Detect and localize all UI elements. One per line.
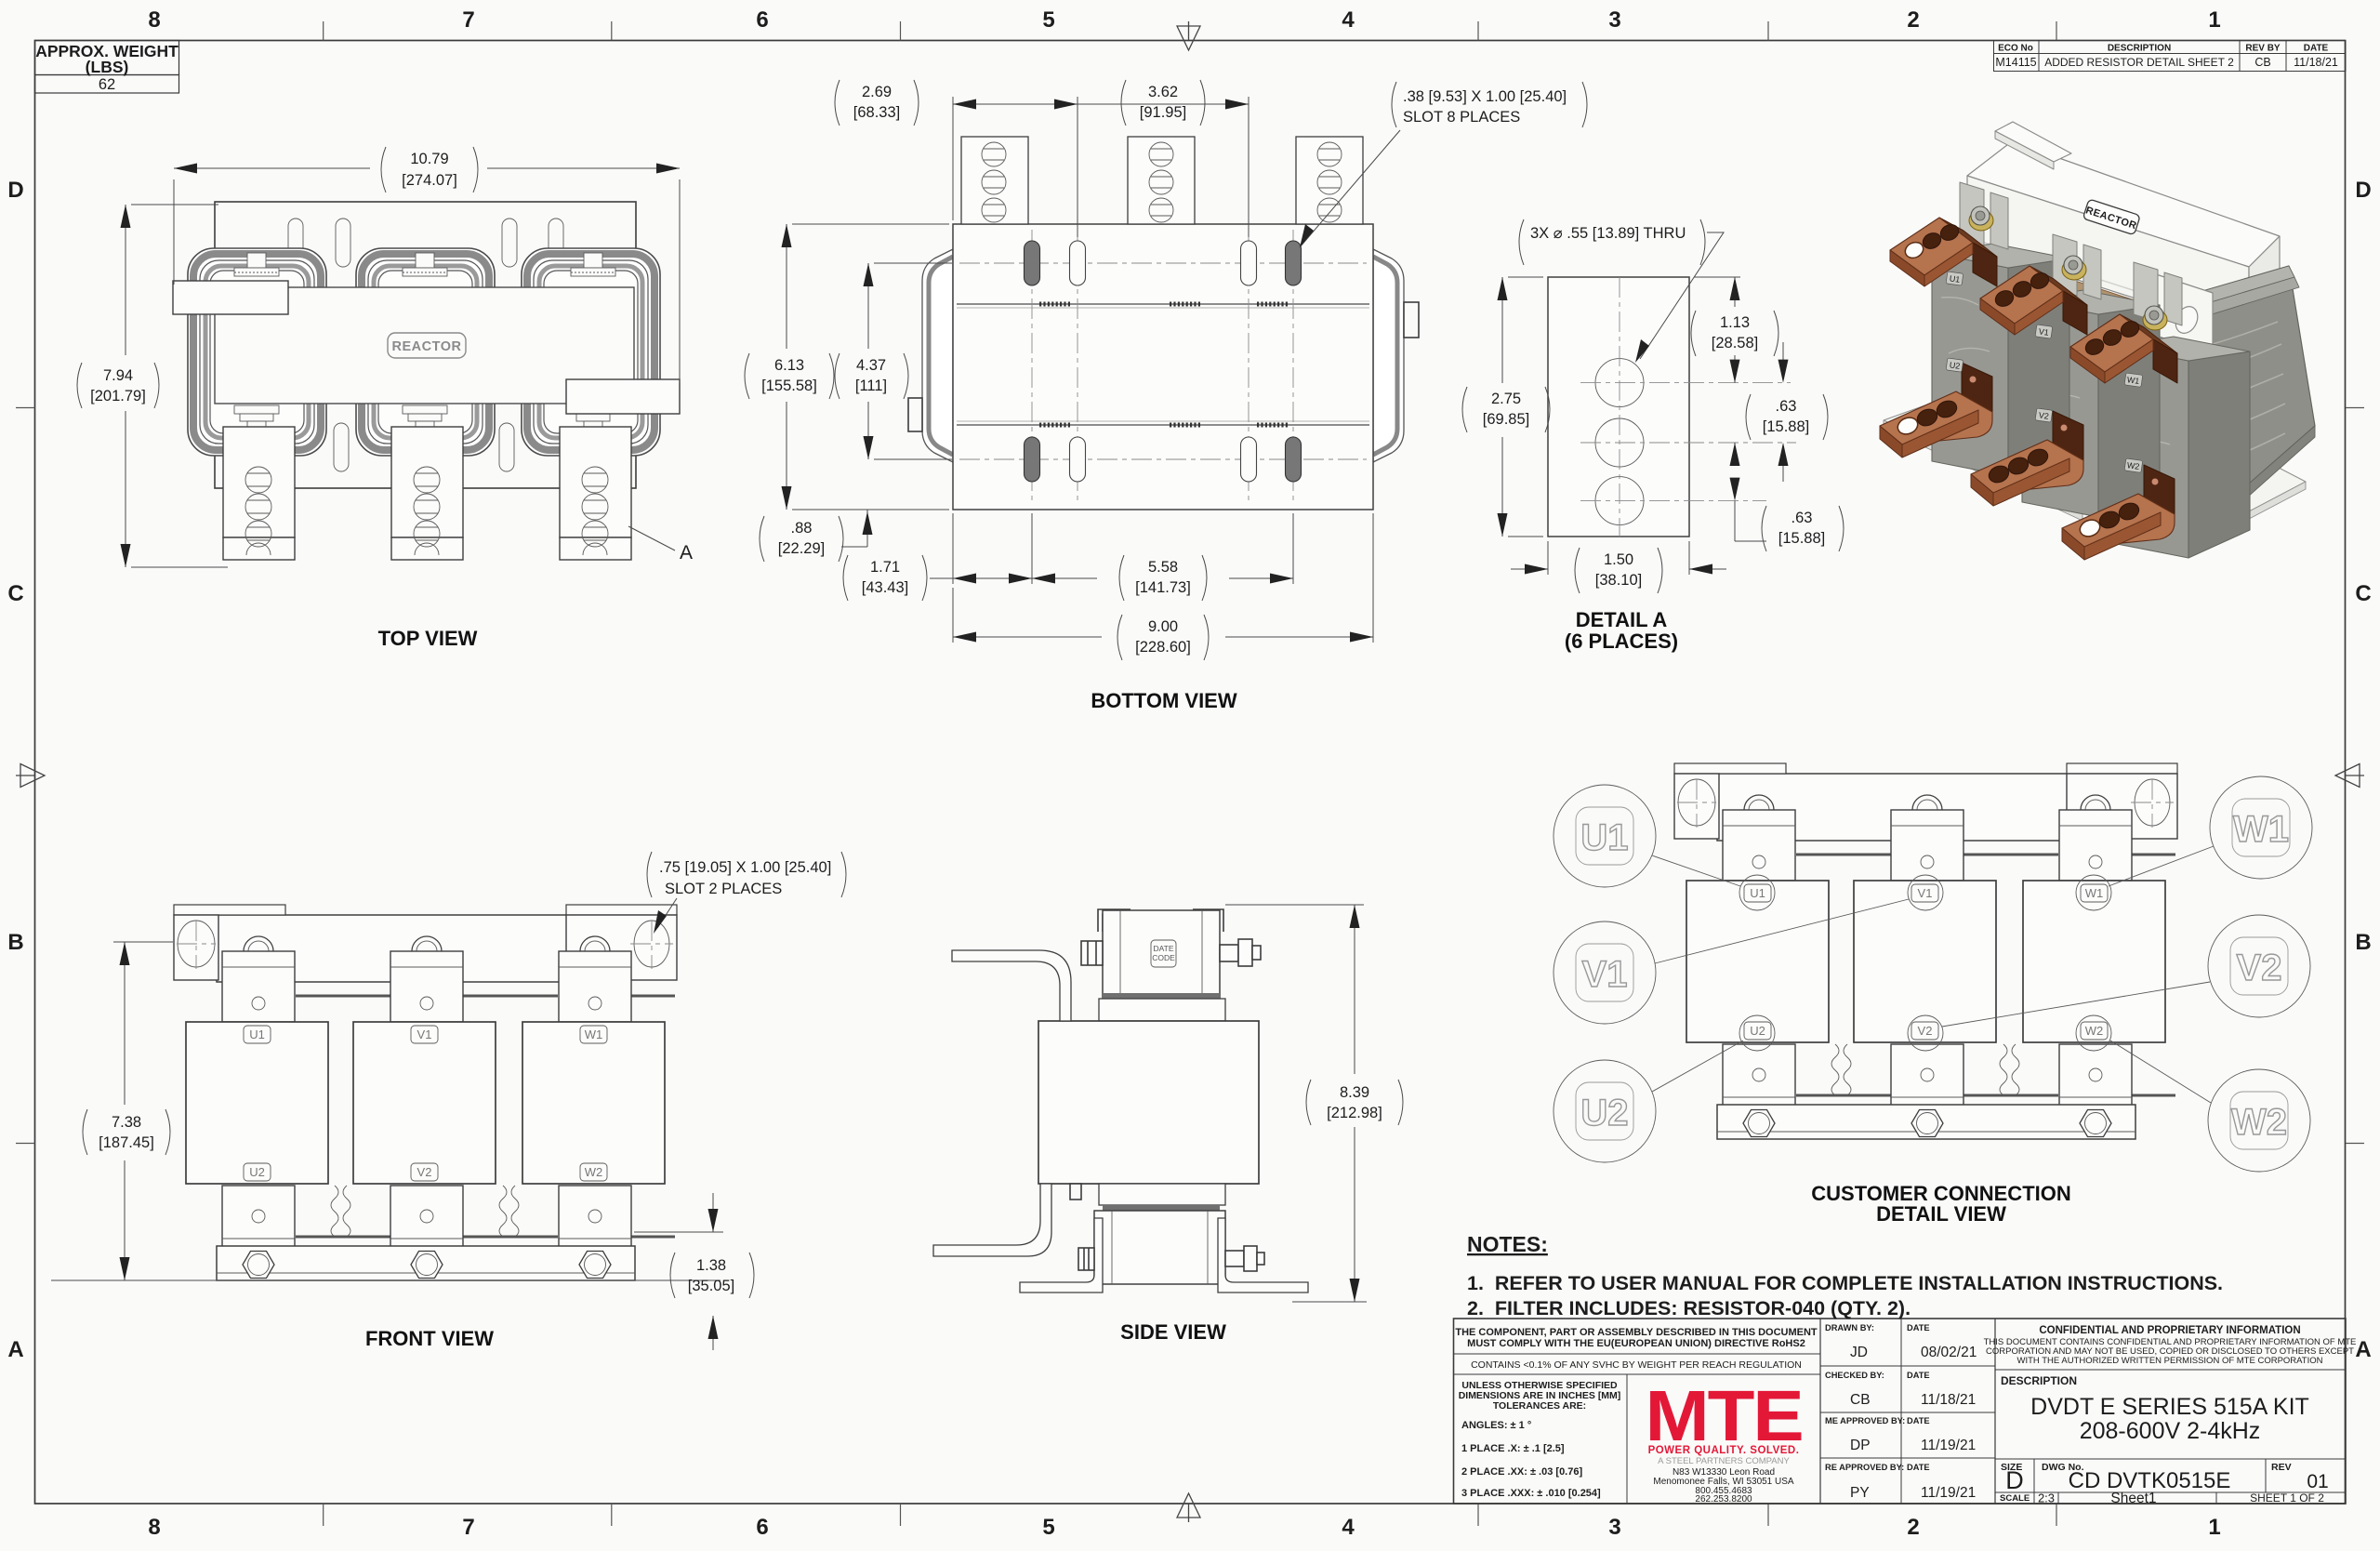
svg-text:11/18/21: 11/18/21 bbox=[1921, 1392, 1976, 1408]
svg-text:[274.07]: [274.07] bbox=[402, 172, 457, 189]
svg-text:BOTTOM VIEW: BOTTOM VIEW bbox=[1091, 689, 1236, 712]
svg-text:[22.29]: [22.29] bbox=[778, 540, 825, 557]
svg-text:7.94: 7.94 bbox=[103, 367, 133, 384]
svg-text:MTE: MTE bbox=[1645, 1375, 1802, 1455]
svg-text:REV: REV bbox=[2271, 1462, 2292, 1473]
svg-text:1: 1 bbox=[2208, 1515, 2220, 1540]
svg-text:DATE: DATE bbox=[2304, 44, 2329, 54]
svg-text:08/02/21: 08/02/21 bbox=[1921, 1345, 1977, 1360]
svg-text:M14115: M14115 bbox=[1995, 56, 2036, 69]
svg-text:W2: W2 bbox=[2231, 1102, 2287, 1143]
svg-text:2 PLACE .XX: ± .03 [0.76]: 2 PLACE .XX: ± .03 [0.76] bbox=[1461, 1466, 1582, 1478]
svg-text:[15.88]: [15.88] bbox=[1763, 418, 1809, 435]
svg-text:DESCRIPTION: DESCRIPTION bbox=[2108, 44, 2171, 54]
svg-text:5: 5 bbox=[1042, 1515, 1054, 1540]
svg-text:.75 [19.05] X 1.00 [25.40]: .75 [19.05] X 1.00 [25.40] bbox=[659, 859, 831, 876]
svg-text:11/19/21: 11/19/21 bbox=[1921, 1438, 1976, 1453]
svg-text:2.75: 2.75 bbox=[1491, 391, 1521, 407]
svg-text:U1: U1 bbox=[249, 1027, 265, 1041]
svg-text:CONFIDENTIAL AND PROPRIETARY I: CONFIDENTIAL AND PROPRIETARY INFORMATION bbox=[2039, 1325, 2300, 1336]
svg-text:4: 4 bbox=[1342, 1515, 1355, 1540]
svg-text:DRAWN BY:: DRAWN BY: bbox=[1825, 1323, 1874, 1332]
svg-text:8: 8 bbox=[148, 1515, 160, 1540]
svg-text:9.00: 9.00 bbox=[1148, 618, 1178, 635]
svg-text:U1: U1 bbox=[1949, 273, 1961, 285]
svg-text:[111]: [111] bbox=[855, 378, 887, 394]
svg-text:A: A bbox=[2355, 1337, 2371, 1362]
svg-text:(6 PLACES): (6 PLACES) bbox=[1565, 630, 1678, 653]
svg-text:DATE: DATE bbox=[1907, 1463, 1930, 1472]
svg-text:1.50: 1.50 bbox=[1604, 551, 1633, 568]
svg-text:A: A bbox=[680, 542, 693, 563]
svg-text:[28.58]: [28.58] bbox=[1712, 335, 1758, 351]
svg-text:W2: W2 bbox=[2126, 460, 2140, 471]
svg-text:POWER QUALITY. SOLVED.: POWER QUALITY. SOLVED. bbox=[1648, 1445, 1800, 1456]
svg-text:262.253.8200: 262.253.8200 bbox=[1695, 1494, 1752, 1505]
svg-text:C: C bbox=[7, 581, 23, 606]
svg-text:ME APPROVED BY:: ME APPROVED BY: bbox=[1825, 1416, 1905, 1425]
svg-text:A STEEL PARTNERS COMPANY: A STEEL PARTNERS COMPANY bbox=[1658, 1456, 1790, 1466]
svg-text:[228.60]: [228.60] bbox=[1135, 639, 1191, 656]
svg-text:1 PLACE .X: ± .1 [2.5]: 1 PLACE .X: ± .1 [2.5] bbox=[1461, 1443, 1565, 1454]
svg-text:ADDED RESISTOR DETAIL SHEET 2: ADDED RESISTOR DETAIL SHEET 2 bbox=[2044, 56, 2234, 69]
svg-text:[15.88]: [15.88] bbox=[1778, 530, 1825, 547]
svg-text:DETAIL VIEW: DETAIL VIEW bbox=[1876, 1202, 2006, 1226]
svg-text:Sheet1: Sheet1 bbox=[2110, 1491, 2156, 1506]
svg-text:8: 8 bbox=[148, 7, 160, 33]
svg-text:5: 5 bbox=[1042, 7, 1054, 33]
svg-text:TOLERANCES ARE:: TOLERANCES ARE: bbox=[1493, 1400, 1586, 1412]
svg-text:RE APPROVED BY:: RE APPROVED BY: bbox=[1825, 1463, 1904, 1472]
svg-text:U1: U1 bbox=[1580, 817, 1628, 858]
svg-text:2: 2 bbox=[1907, 7, 1919, 33]
svg-text:W1: W1 bbox=[2233, 809, 2289, 850]
svg-text:SIDE VIEW: SIDE VIEW bbox=[1120, 1320, 1226, 1344]
svg-text:C: C bbox=[2355, 581, 2371, 606]
svg-text:SLOT 2 PLACES: SLOT 2 PLACES bbox=[665, 881, 782, 897]
svg-text:3.62: 3.62 bbox=[1148, 84, 1178, 100]
svg-text:V2: V2 bbox=[2237, 948, 2282, 988]
svg-text:6: 6 bbox=[756, 7, 768, 33]
svg-text:.88: .88 bbox=[791, 520, 813, 537]
svg-text:ANGLES: ± 1 °: ANGLES: ± 1 ° bbox=[1461, 1420, 1531, 1431]
svg-text:TOP VIEW: TOP VIEW bbox=[378, 627, 478, 650]
svg-text:WITH THE AUTHORIZED WRITTEN PE: WITH THE AUTHORIZED WRITTEN PERMISSION O… bbox=[2017, 1356, 2323, 1366]
svg-text:.63: .63 bbox=[1792, 510, 1813, 526]
svg-text:[35.05]: [35.05] bbox=[688, 1278, 734, 1294]
svg-text:ECO No: ECO No bbox=[1998, 44, 2033, 54]
svg-text:3: 3 bbox=[1608, 1515, 1620, 1540]
svg-text:W1: W1 bbox=[585, 1027, 603, 1041]
svg-text:DP: DP bbox=[1850, 1438, 1871, 1453]
svg-text:D: D bbox=[2355, 178, 2371, 203]
svg-text:2. FILTER INCLUDES: RESISTOR-: 2. FILTER INCLUDES: RESISTOR-040 (QTY. 2… bbox=[1467, 1297, 1911, 1319]
svg-text:V1: V1 bbox=[417, 1027, 432, 1041]
svg-text:DETAIL A: DETAIL A bbox=[1576, 608, 1668, 631]
svg-text:JD: JD bbox=[1850, 1345, 1868, 1360]
svg-text:01: 01 bbox=[2307, 1471, 2328, 1492]
svg-text:1. REFER TO USER MANUAL FOR C: 1. REFER TO USER MANUAL FOR COMPLETE INS… bbox=[1467, 1272, 2223, 1294]
svg-text:5.58: 5.58 bbox=[1148, 559, 1178, 576]
svg-text:10.79: 10.79 bbox=[410, 151, 448, 167]
svg-text:6.13: 6.13 bbox=[774, 357, 804, 374]
svg-text:V1: V1 bbox=[1582, 954, 1628, 995]
svg-text:CHECKED BY:: CHECKED BY: bbox=[1825, 1371, 1884, 1380]
svg-text:DVDT E SERIES 515A KIT: DVDT E SERIES 515A KIT bbox=[2030, 1394, 2309, 1420]
svg-text:[43.43]: [43.43] bbox=[862, 579, 908, 596]
svg-text:2:3: 2:3 bbox=[2038, 1491, 2055, 1505]
svg-text:U2: U2 bbox=[1580, 1093, 1628, 1133]
svg-text:SHEET 1 OF 2: SHEET 1 OF 2 bbox=[2250, 1491, 2324, 1505]
svg-text:[68.33]: [68.33] bbox=[853, 104, 900, 121]
svg-text:[91.95]: [91.95] bbox=[1140, 104, 1186, 121]
svg-text:8.39: 8.39 bbox=[1340, 1084, 1369, 1101]
svg-text:DESCRIPTION: DESCRIPTION bbox=[2001, 1374, 2077, 1387]
svg-text:V2: V2 bbox=[2038, 410, 2049, 420]
svg-text:.38 [9.53] X 1.00 [25.40]: .38 [9.53] X 1.00 [25.40] bbox=[1403, 88, 1567, 105]
svg-text:7: 7 bbox=[462, 1515, 474, 1540]
svg-text:THE COMPONENT, PART OR ASSEMBL: THE COMPONENT, PART OR ASSEMBLY DESCRIBE… bbox=[1455, 1327, 1818, 1338]
svg-text:7.38: 7.38 bbox=[112, 1114, 141, 1131]
svg-text:W2: W2 bbox=[585, 1165, 603, 1179]
svg-text:3X ⌀ .55 [13.89] THRU: 3X ⌀ .55 [13.89] THRU bbox=[1530, 225, 1686, 242]
svg-text:CD DVTK0515E: CD DVTK0515E bbox=[2069, 1468, 2231, 1493]
svg-text:11/19/21: 11/19/21 bbox=[1921, 1485, 1976, 1501]
svg-text:SCALE: SCALE bbox=[2000, 1493, 2030, 1504]
svg-text:[69.85]: [69.85] bbox=[1483, 411, 1529, 428]
svg-text:6: 6 bbox=[756, 1515, 768, 1540]
svg-text:7: 7 bbox=[462, 7, 474, 33]
svg-text:1.71: 1.71 bbox=[870, 559, 900, 576]
svg-text:DATE: DATE bbox=[1907, 1323, 1930, 1332]
svg-text:CB: CB bbox=[1850, 1392, 1871, 1408]
svg-text:MUST COMPLY WITH THE EU(EUROPE: MUST COMPLY WITH THE EU(EUROPEAN UNION) … bbox=[1467, 1338, 1805, 1349]
svg-text:11/18/21: 11/18/21 bbox=[2294, 56, 2338, 69]
svg-text:208-600V 2-4kHz: 208-600V 2-4kHz bbox=[2080, 1418, 2261, 1444]
svg-text:1.13: 1.13 bbox=[1720, 314, 1750, 331]
svg-text:CONTAINS <0.1% OF ANY SVHC BY: CONTAINS <0.1% OF ANY SVHC BY WEIGHT PER… bbox=[1471, 1359, 1802, 1371]
svg-text:[38.10]: [38.10] bbox=[1595, 572, 1642, 589]
svg-text:U2: U2 bbox=[249, 1165, 265, 1179]
svg-text:3: 3 bbox=[1608, 7, 1620, 33]
svg-text:4: 4 bbox=[1342, 7, 1355, 33]
svg-text:2: 2 bbox=[1907, 1515, 1919, 1540]
svg-text:4.37: 4.37 bbox=[856, 357, 886, 374]
svg-text:D: D bbox=[2005, 1466, 2024, 1494]
svg-text:B: B bbox=[2355, 930, 2371, 955]
svg-text:(LBS): (LBS) bbox=[86, 58, 129, 76]
svg-text:62: 62 bbox=[99, 76, 115, 93]
svg-text:V1: V1 bbox=[2038, 326, 2049, 337]
svg-text:[141.73]: [141.73] bbox=[1135, 579, 1191, 596]
svg-text:B: B bbox=[7, 930, 23, 955]
svg-text:CODE: CODE bbox=[1152, 953, 1175, 962]
svg-text:[155.58]: [155.58] bbox=[761, 378, 817, 394]
svg-text:2.69: 2.69 bbox=[862, 84, 892, 100]
svg-text:PY: PY bbox=[1850, 1485, 1870, 1501]
svg-text:DATE: DATE bbox=[1907, 1416, 1930, 1425]
svg-text:[212.98]: [212.98] bbox=[1327, 1105, 1382, 1121]
svg-text:CB: CB bbox=[2254, 56, 2270, 69]
svg-text:.63: .63 bbox=[1776, 398, 1797, 415]
svg-text:DATE: DATE bbox=[1153, 944, 1173, 953]
svg-text:D: D bbox=[7, 178, 23, 203]
svg-text:DATE: DATE bbox=[1907, 1371, 1930, 1380]
svg-text:REACTOR: REACTOR bbox=[392, 339, 462, 354]
svg-text:REV BY: REV BY bbox=[2245, 44, 2281, 54]
svg-text:3 PLACE .XXX: ± .010 [0.254]: 3 PLACE .XXX: ± .010 [0.254] bbox=[1461, 1488, 1601, 1499]
svg-text:A: A bbox=[7, 1337, 23, 1362]
svg-text:[201.79]: [201.79] bbox=[90, 388, 146, 404]
svg-text:V2: V2 bbox=[417, 1165, 432, 1179]
svg-text:U2: U2 bbox=[1949, 360, 1961, 371]
svg-text:W1: W1 bbox=[2126, 375, 2140, 386]
svg-text:1: 1 bbox=[2208, 7, 2220, 33]
svg-text:SLOT 8 PLACES: SLOT 8 PLACES bbox=[1403, 109, 1520, 126]
svg-text:[187.45]: [187.45] bbox=[99, 1134, 154, 1151]
svg-text:1.38: 1.38 bbox=[696, 1257, 726, 1274]
svg-text:NOTES:: NOTES: bbox=[1467, 1232, 1548, 1256]
svg-text:FRONT VIEW: FRONT VIEW bbox=[365, 1327, 494, 1350]
